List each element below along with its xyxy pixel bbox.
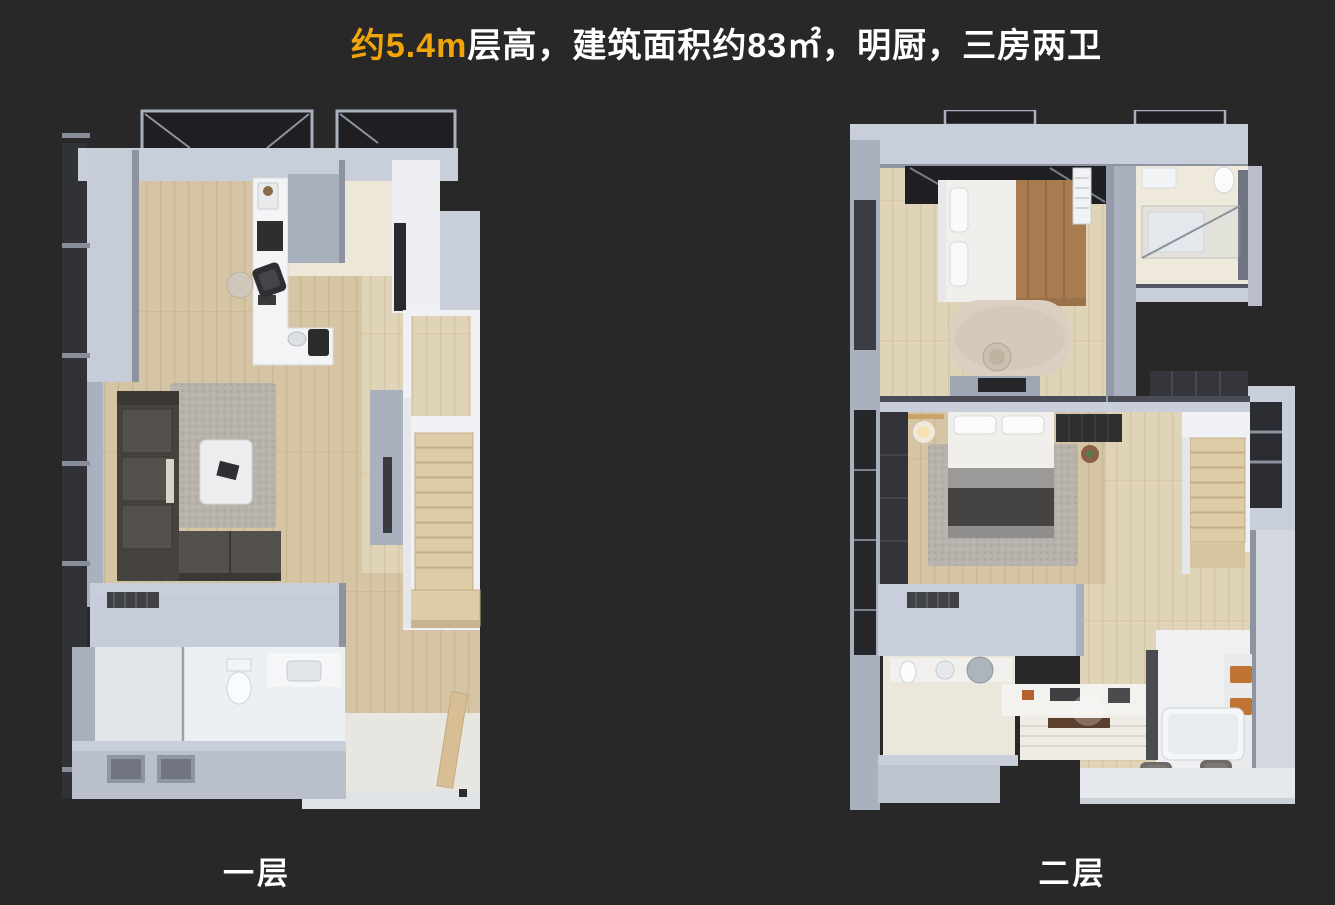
floor2-svg	[850, 110, 1295, 818]
bed-small	[938, 180, 1086, 306]
floor2-vanity-area	[1002, 684, 1160, 760]
stair-railing	[403, 398, 411, 628]
floor2-bathroom-top	[1136, 166, 1248, 302]
floor2-bathroom-bottom	[883, 656, 1015, 756]
round-mirror	[967, 657, 993, 683]
title-rest: 层高，建筑面积约83㎡，明厨，三房两卫	[467, 27, 1102, 65]
toilet	[227, 672, 251, 704]
vessel-sink	[936, 661, 954, 679]
floor1-svg	[62, 103, 490, 815]
tv	[978, 378, 1026, 392]
oven	[257, 221, 283, 251]
page-title: 约5.4m层高，建筑面积约83㎡，明厨，三房两卫	[0, 18, 1335, 67]
floor2-washroom-right	[1140, 630, 1252, 790]
floor2-staircase	[1182, 412, 1250, 574]
floor2-label: 二层	[850, 848, 1295, 893]
toilet-2	[1214, 167, 1234, 193]
stair-treads	[415, 433, 473, 603]
headboard-storage	[1056, 414, 1122, 442]
floor2-plan-render	[850, 110, 1295, 818]
shower-area	[95, 647, 183, 741]
floor2-mid-wall-band	[878, 584, 1084, 656]
ac-vent-2	[907, 592, 959, 608]
kitchen-sink	[288, 332, 306, 346]
floor1-label: 一层	[62, 848, 452, 893]
wardrobe-band	[1150, 371, 1248, 396]
master-bed	[948, 412, 1054, 538]
page: 约5.4m层高，建筑面积约83㎡，明厨，三房两卫	[0, 0, 1335, 905]
stair-landing	[1190, 542, 1245, 568]
title-highlight: 约5.4m	[351, 27, 468, 65]
ac-vent	[107, 592, 159, 608]
ac-unit	[1073, 168, 1091, 224]
light-glow	[1072, 694, 1104, 726]
pouf	[227, 272, 253, 298]
floor1-plan-render	[62, 103, 490, 815]
stair-railing-2	[1182, 438, 1190, 574]
towel-1	[1230, 666, 1252, 683]
overhead-cabinet	[288, 160, 345, 263]
floor1-bathroom	[72, 583, 346, 799]
cooktop	[308, 329, 329, 356]
coffee-table	[200, 440, 252, 504]
